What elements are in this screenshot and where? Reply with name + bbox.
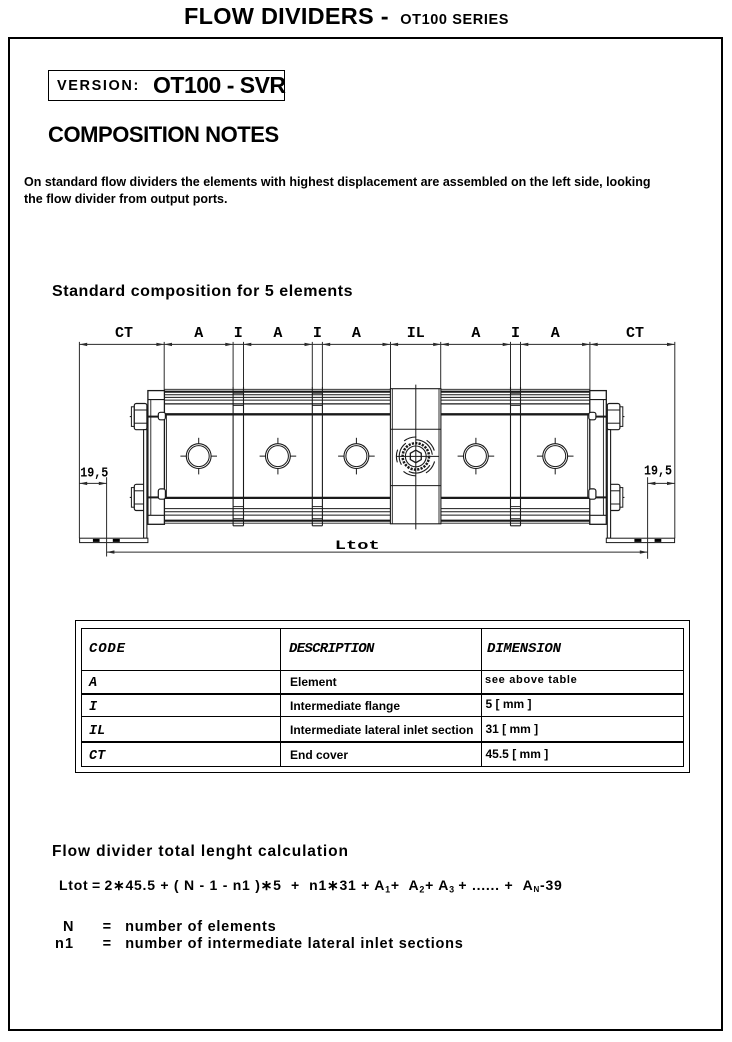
- svg-text:CT: CT: [626, 325, 644, 342]
- svg-text:I: I: [234, 325, 243, 342]
- svg-text:IL: IL: [407, 325, 425, 342]
- svg-text:19,5: 19,5: [644, 464, 672, 480]
- svg-text:A: A: [273, 325, 282, 342]
- svg-text:I: I: [313, 325, 322, 342]
- svg-text:A: A: [551, 325, 560, 342]
- svg-text:A: A: [352, 325, 361, 342]
- svg-text:I: I: [511, 325, 520, 342]
- svg-text:CT: CT: [115, 325, 133, 342]
- svg-text:Ltot: Ltot: [335, 539, 380, 553]
- svg-text:19,5: 19,5: [80, 466, 108, 482]
- svg-text:A: A: [194, 325, 203, 342]
- svg-text:A: A: [471, 325, 480, 342]
